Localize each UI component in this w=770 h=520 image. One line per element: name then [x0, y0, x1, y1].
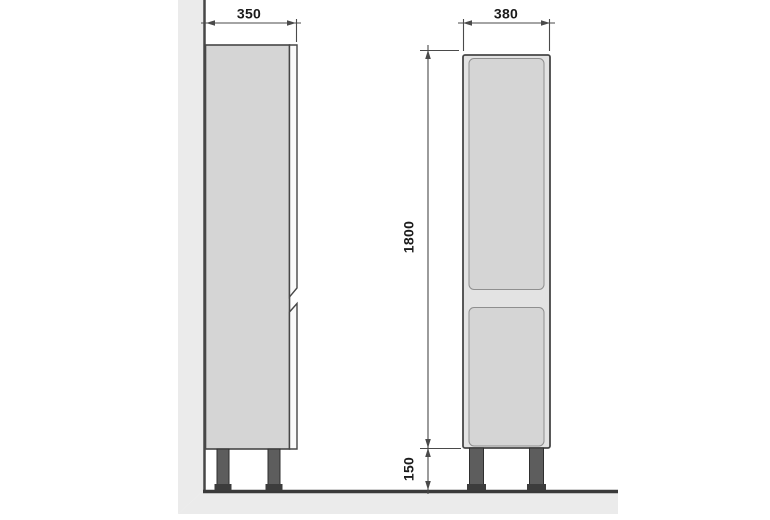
cabinet-side-view: [206, 45, 298, 491]
technical-drawing: 350 380 1800 150: [0, 0, 770, 520]
dim-label-body-height: 1800: [401, 221, 417, 253]
drawing-canvas: 350 380 1800 150: [0, 0, 770, 520]
cabinet-leg: [470, 448, 484, 485]
side-panel: [206, 45, 290, 449]
drawing-background: [0, 0, 770, 520]
cabinet-leg: [217, 449, 229, 486]
upper-door: [469, 59, 544, 290]
leg-foot: [467, 484, 486, 491]
lower-door-edge: [290, 304, 298, 450]
cabinet-leg: [530, 448, 544, 485]
leg-foot: [527, 484, 546, 491]
cabinet-leg: [268, 449, 280, 486]
dim-label-leg-height: 150: [401, 457, 417, 481]
lower-door: [469, 308, 544, 447]
wall: [178, 0, 204, 514]
leg-foot: [266, 484, 283, 491]
upper-door-edge: [290, 45, 298, 297]
leg-foot: [215, 484, 232, 491]
dim-label-side-width: 350: [237, 6, 261, 22]
floor: [178, 490, 618, 514]
cabinet-front-view: [463, 55, 550, 491]
dim-label-front-width: 380: [494, 6, 518, 22]
